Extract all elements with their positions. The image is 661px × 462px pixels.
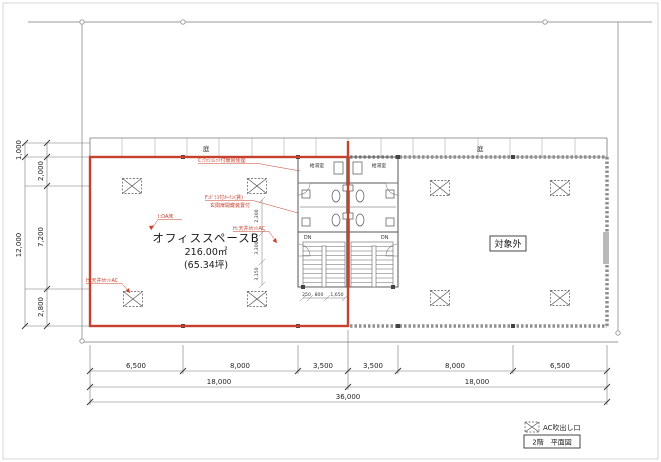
stair-dim-3: 1,650	[330, 292, 343, 298]
ac-outlet-legend-label: AC吹出し口	[543, 423, 581, 432]
excluded-area-walls	[350, 157, 607, 326]
floor-plan-drawing: 庭 庭	[0, 0, 661, 462]
annotation-c: C:ｳｫｼｭﾚｯﾄ付暖房便座	[198, 157, 246, 164]
dim-3500-left: 3,500	[313, 362, 333, 370]
annotation-f1: F:ｶﾞﾗｽ付ｶｰﾃﾝ(賃)	[205, 194, 243, 201]
kyutou-left-label: 給湯室	[310, 162, 325, 169]
core-dim-2: 3,300	[254, 241, 260, 254]
dim-7200: 7,200	[37, 227, 45, 247]
excluded-label: 対象外	[494, 238, 521, 250]
dn-label-right: DN	[381, 235, 389, 241]
dim-1000: 1,000	[15, 140, 23, 160]
annotation-h1: H:天井ｶｾｯﾄAC	[233, 225, 266, 232]
stair-right	[351, 242, 393, 287]
stair-left	[303, 242, 345, 287]
ac-outlet-legend-icon	[525, 422, 539, 432]
dim-36000-total: 36,000	[336, 393, 361, 401]
office-b-area: 216.00㎡	[185, 247, 228, 258]
dim-8000-left: 8,000	[230, 362, 250, 370]
core-dim-1: 2,300	[254, 209, 260, 222]
red-annotations: C:ｳｫｼｭﾚｯﾄ付暖房便座 F:ｶﾞﾗｽ付ｶｰﾃﾝ(賃) 玄関扉開鍵装置付 I…	[86, 157, 300, 293]
dim-6500-right: 6,500	[550, 362, 570, 370]
kyutou-right-label: 給湯室	[372, 162, 387, 169]
dim-8000-right: 8,000	[445, 362, 465, 370]
floor-plan-sheet: 庭 庭	[0, 0, 661, 462]
garden-label-right: 庭	[477, 144, 484, 153]
window-mark	[603, 232, 609, 264]
core-dim-3: 3,150	[254, 267, 260, 280]
sheet-border	[3, 3, 658, 459]
office-b-name: オフィススペースB	[152, 231, 259, 245]
garden-label-left: 庭	[203, 144, 210, 153]
dim-3500-right: 3,500	[363, 362, 383, 370]
office-b-tsubo: (65.34坪)	[184, 259, 228, 271]
sheet-title: 2階 平面図	[532, 438, 571, 447]
annotation-h2: H:天井ｶｾｯﾄAC	[86, 277, 119, 284]
dim-18000-left: 18,000	[207, 378, 232, 386]
legend: AC吹出し口 2階 平面図	[524, 422, 581, 448]
stair-dim-2: 800	[315, 292, 324, 298]
annotation-i: I:OA床	[158, 213, 173, 220]
dn-label-left: DN	[304, 235, 312, 241]
dim-6500-left: 6,500	[126, 362, 146, 370]
left-dimension-lines	[22, 140, 90, 329]
annotation-f2: 玄関扉開鍵装置付	[210, 202, 250, 209]
dim-12000-total: 12,000	[15, 233, 23, 258]
dim-2800: 2,800	[37, 297, 45, 317]
stair-dim-1: 250	[302, 292, 311, 298]
dim-2000: 2,000	[37, 161, 45, 181]
dim-18000-right: 18,000	[465, 378, 490, 386]
